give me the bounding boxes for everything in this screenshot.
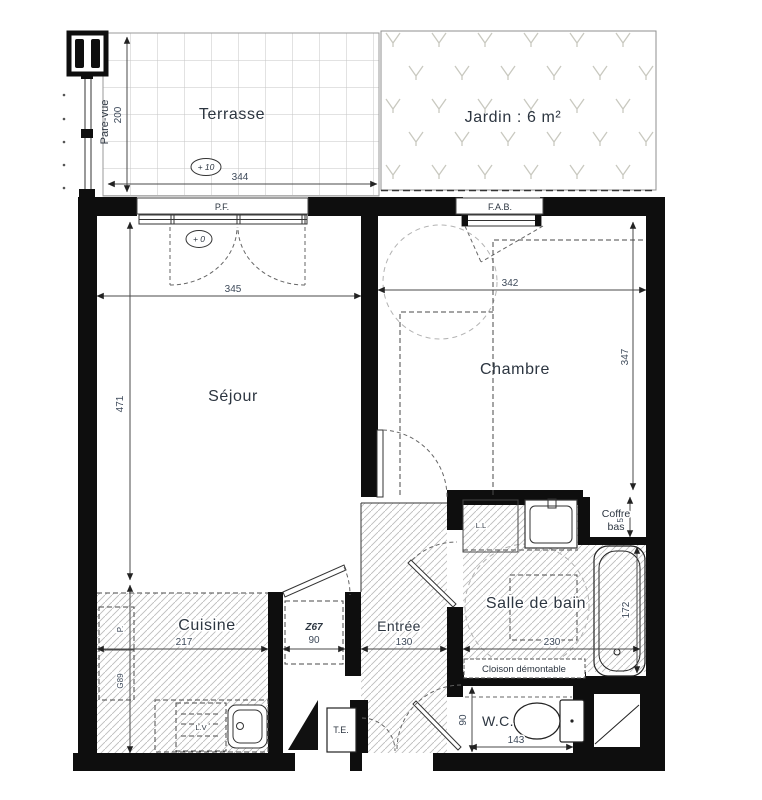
room-label-cuisine: Cuisine: [178, 617, 236, 634]
window-pf-label: P.F.: [215, 202, 229, 212]
dim-terrasse-w: 344: [232, 172, 249, 183]
property-line-dots: [63, 94, 66, 190]
dim-cuisine-seg-b: G89: [116, 673, 125, 689]
entrance-door-leaf-icon: [288, 700, 318, 750]
bedroom-door: [377, 430, 447, 497]
closet-width-dim: 90: [308, 635, 320, 646]
dim-wc-d: 90: [458, 714, 469, 726]
dim-sdb-w: 230: [544, 637, 561, 648]
room-label-jardin: Jardin : 6 m²: [465, 109, 562, 126]
dishwasher-label: L.V: [195, 723, 206, 732]
window-fab: F.A.B.: [456, 198, 543, 262]
coffre-bas-label-2: bas: [608, 521, 625, 533]
electrical-panel: T.E.: [327, 708, 356, 752]
pare-vue-label: Pare-vue: [99, 100, 111, 145]
dim-sejour-w: 345: [225, 284, 242, 295]
dim-chambre-h: 347: [620, 348, 631, 365]
level-sejour: + 0: [193, 234, 205, 244]
electrical-panel-label: T.E.: [333, 725, 349, 735]
toilet-icon: [514, 700, 584, 742]
closet-z67: Z67 90: [285, 601, 343, 664]
coffre-bas-label-1: Coffre: [602, 508, 631, 520]
room-label-sejour: Séjour: [208, 388, 258, 405]
dim-cuisine-w: 217: [176, 637, 193, 648]
shutter-box-icon: [69, 33, 106, 74]
room-label-salle-de-bain: Salle de bain: [486, 595, 586, 612]
level-terrasse: + 10: [198, 162, 215, 172]
dim-bain-l: 172: [621, 601, 632, 618]
dim-wc-w: 143: [508, 735, 525, 746]
room-label-chambre: Chambre: [480, 361, 550, 378]
washer-label: L.L: [476, 521, 486, 530]
room-label-entree: Entrée: [377, 618, 421, 634]
room-label-terrasse: Terrasse: [199, 106, 265, 123]
window-fab-label: F.A.B.: [488, 202, 512, 212]
dim-entree-w: 130: [396, 637, 413, 648]
room-label-wc: W.C.: [482, 713, 514, 729]
kitchen-sink-icon: [228, 705, 267, 748]
duct-shaft: [588, 688, 646, 753]
floor-plan-drawing: P.F. F.A.B.: [0, 0, 762, 800]
bathroom-sink-icon: [525, 499, 577, 548]
dim-sejour-h: 471: [115, 395, 126, 412]
cloison-demontable-label: Cloison démontable: [482, 664, 566, 675]
closet-label: Z67: [304, 622, 323, 633]
floor-plan: P.F. F.A.B.: [0, 0, 762, 800]
dim-cuisine-seg-a: P.: [116, 626, 125, 633]
dim-chambre-w: 342: [502, 278, 519, 289]
closet-door: [283, 565, 350, 597]
window-pf: P.F.: [137, 198, 308, 285]
dim-terrasse-h: 200: [113, 106, 124, 123]
